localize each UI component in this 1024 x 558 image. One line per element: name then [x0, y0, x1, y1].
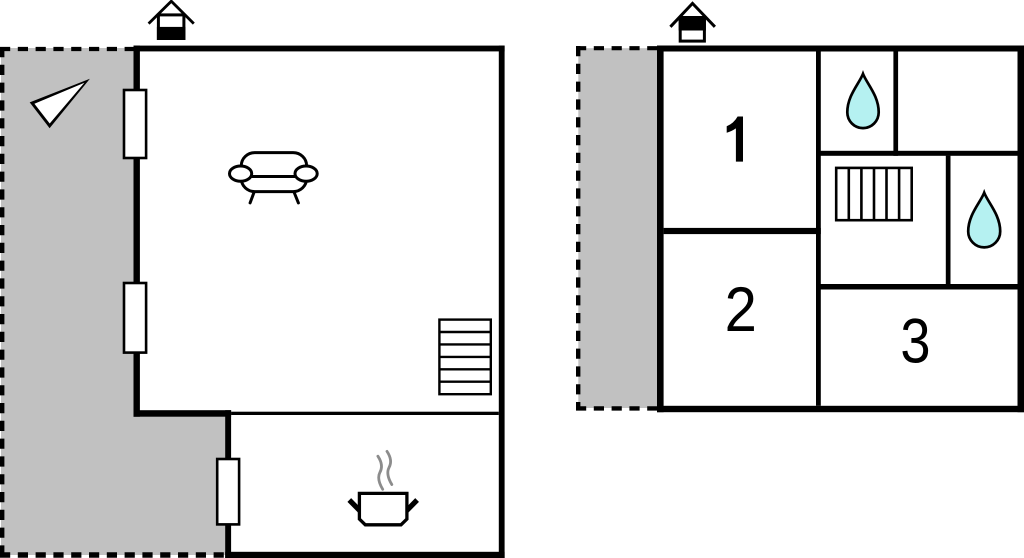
svg-text:2: 2: [725, 274, 757, 345]
svg-text:3: 3: [900, 307, 930, 377]
